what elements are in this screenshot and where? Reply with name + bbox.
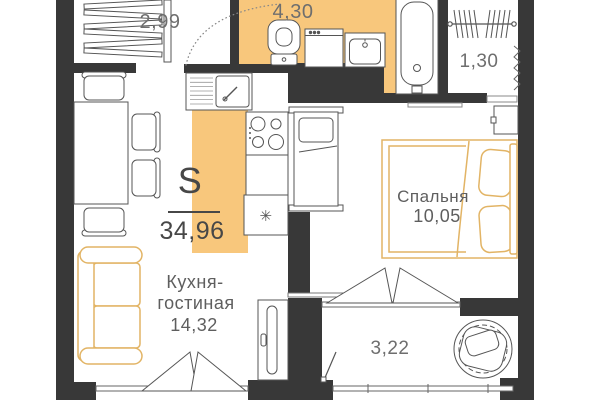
wall-segment bbox=[438, 0, 448, 96]
floorplan-canvas: 2,99 4,30 1,30 Спальня 10,05 S 34,96 Кух… bbox=[0, 0, 600, 400]
bathtub-deck bbox=[396, 0, 438, 94]
wicker-chair bbox=[454, 320, 512, 378]
wall-segment bbox=[460, 298, 518, 316]
toilet bbox=[268, 20, 300, 54]
closet-door bbox=[487, 96, 517, 102]
tv-unit bbox=[258, 300, 288, 380]
sofa-back bbox=[78, 251, 94, 361]
washer-knob bbox=[313, 31, 315, 33]
fridge-snowflake-icon: ✳ bbox=[259, 207, 272, 225]
dining-group bbox=[74, 72, 160, 236]
balcony-glazing bbox=[333, 386, 513, 391]
sofa-armrest bbox=[80, 348, 142, 364]
closet-rod bbox=[448, 10, 516, 38]
washing-machine bbox=[305, 29, 343, 67]
tv-knob bbox=[261, 334, 266, 346]
door-hinge bbox=[321, 377, 326, 382]
sofa-armrest bbox=[80, 247, 142, 263]
window-casement bbox=[142, 352, 197, 391]
kitchen-living-name-line1: Кухня- bbox=[166, 272, 223, 293]
wall-segment bbox=[74, 382, 96, 400]
stove-knob bbox=[249, 127, 251, 129]
stove-knob bbox=[249, 137, 251, 139]
total-area-divider bbox=[168, 211, 220, 213]
window-casement bbox=[191, 352, 246, 391]
crib-pillow bbox=[299, 118, 333, 142]
total-area-symbol: S bbox=[178, 160, 203, 202]
bedroom-area-label: 10,05 bbox=[413, 206, 461, 227]
chair bbox=[132, 114, 156, 150]
wall-segment bbox=[248, 380, 333, 400]
wall-segment bbox=[288, 212, 310, 294]
bathtub-tap bbox=[412, 86, 422, 93]
bed-pillow bbox=[478, 149, 514, 198]
hanger-icon bbox=[84, 48, 162, 57]
washer-knob bbox=[309, 31, 311, 33]
rail-end bbox=[448, 22, 452, 26]
toilet-tank bbox=[271, 54, 297, 65]
sofa-cushion bbox=[93, 263, 140, 306]
closet-area-label: 1,30 bbox=[460, 51, 499, 73]
kitchen-living-name-line2: гостиная bbox=[157, 293, 234, 314]
kitchen-cabinet bbox=[246, 155, 288, 195]
nightstand bbox=[491, 106, 518, 134]
wall-segment bbox=[288, 298, 322, 385]
balcony-door-leaf bbox=[324, 352, 336, 380]
stove bbox=[246, 112, 288, 155]
sofa bbox=[78, 247, 142, 364]
stove-knob bbox=[249, 132, 251, 134]
tv-screen bbox=[267, 306, 277, 374]
total-area-value: 34,96 bbox=[159, 217, 224, 246]
crib bbox=[289, 107, 343, 211]
chair bbox=[84, 76, 124, 100]
chair bbox=[132, 160, 156, 196]
bed-pillow bbox=[478, 205, 513, 253]
wall-segment bbox=[56, 0, 74, 400]
sofa-cushion bbox=[93, 306, 140, 348]
window-casement bbox=[327, 268, 392, 303]
bed-headboard bbox=[510, 144, 517, 254]
floorplan-drawing bbox=[0, 0, 600, 400]
bedroom-name-label: Спальня bbox=[397, 187, 469, 207]
wall-segment bbox=[230, 0, 239, 64]
sink-cabinet bbox=[186, 73, 252, 110]
kitchen-living-area-label: 14,32 bbox=[170, 315, 218, 336]
nightstand-top bbox=[494, 106, 518, 134]
wall-segment bbox=[518, 0, 534, 400]
washer-knob bbox=[317, 31, 319, 33]
wall-segment bbox=[288, 63, 384, 103]
rail-end bbox=[512, 22, 516, 26]
window-casement bbox=[393, 268, 458, 303]
chair bbox=[84, 208, 124, 232]
hanger-icon bbox=[84, 39, 162, 48]
nightstand-knob bbox=[491, 117, 496, 123]
shelf bbox=[408, 103, 462, 107]
bathroom-area-label: 4,30 bbox=[273, 1, 314, 24]
hanger-icon bbox=[84, 0, 162, 9]
bathroom-floor-strip bbox=[384, 63, 397, 93]
dining-table bbox=[74, 102, 128, 204]
hallway-area-label: 2,99 bbox=[140, 11, 181, 34]
balcony-area-label: 3,22 bbox=[371, 338, 410, 360]
